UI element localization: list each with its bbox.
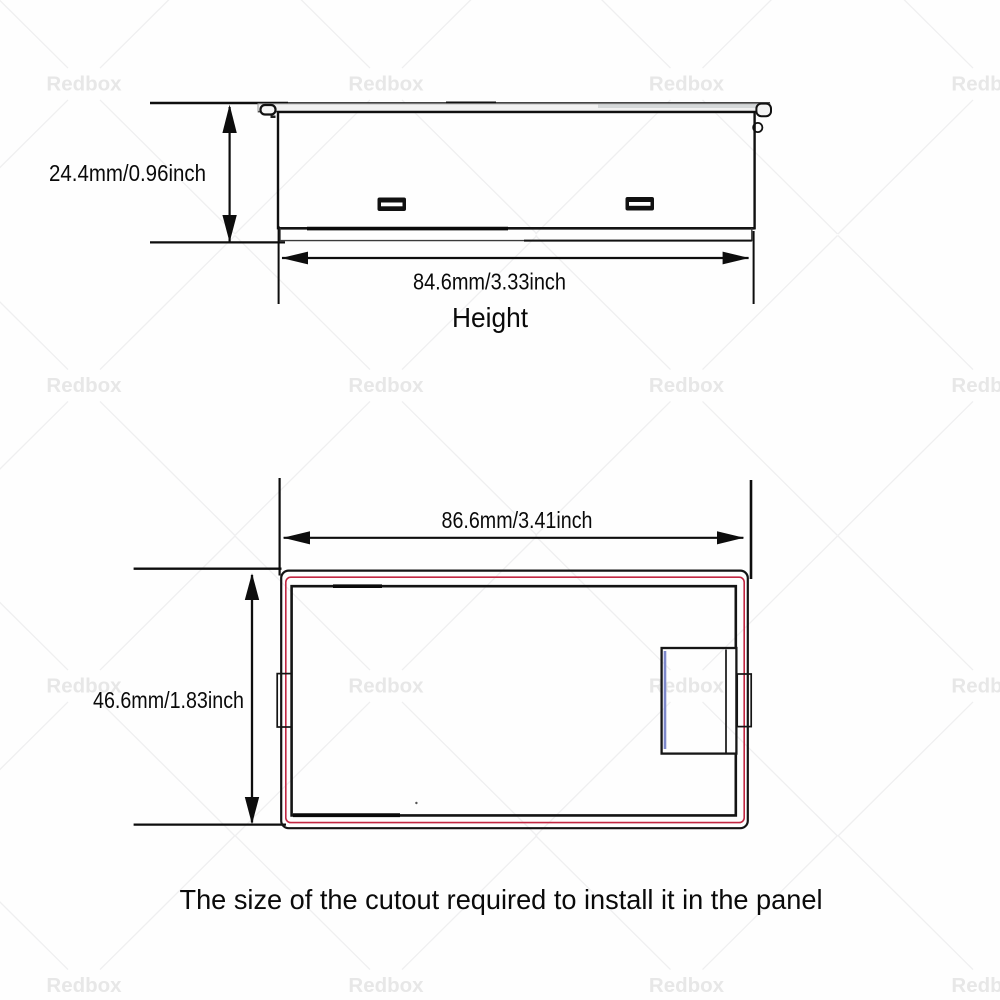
svg-text:Height: Height — [452, 302, 528, 333]
svg-text:Redbox: Redbox — [46, 374, 122, 397]
svg-text:Redbox: Redbox — [649, 974, 725, 997]
svg-text:The size of the cutout require: The size of the cutout required to insta… — [180, 884, 823, 915]
svg-text:Redbox: Redbox — [951, 974, 1000, 997]
svg-text:24.4mm/0.96inch: 24.4mm/0.96inch — [49, 160, 206, 186]
svg-text:Redbox: Redbox — [649, 73, 725, 96]
svg-text:84.6mm/3.33inch: 84.6mm/3.33inch — [413, 269, 566, 295]
svg-text:Redbox: Redbox — [951, 374, 1000, 397]
svg-text:86.6mm/3.41inch: 86.6mm/3.41inch — [442, 507, 593, 533]
svg-text:Redbox: Redbox — [951, 73, 1000, 96]
svg-text:Redbox: Redbox — [951, 675, 1000, 698]
svg-text:Redbox: Redbox — [348, 374, 424, 397]
svg-text:46.6mm/1.83inch: 46.6mm/1.83inch — [93, 687, 244, 713]
svg-text:Redbox: Redbox — [348, 974, 424, 997]
svg-text:Redbox: Redbox — [649, 374, 725, 397]
svg-text:Redbox: Redbox — [348, 675, 424, 698]
svg-text:Redbox: Redbox — [649, 675, 725, 698]
svg-text:Redbox: Redbox — [46, 974, 122, 997]
svg-text:Redbox: Redbox — [348, 73, 424, 96]
svg-text:Redbox: Redbox — [46, 73, 122, 96]
